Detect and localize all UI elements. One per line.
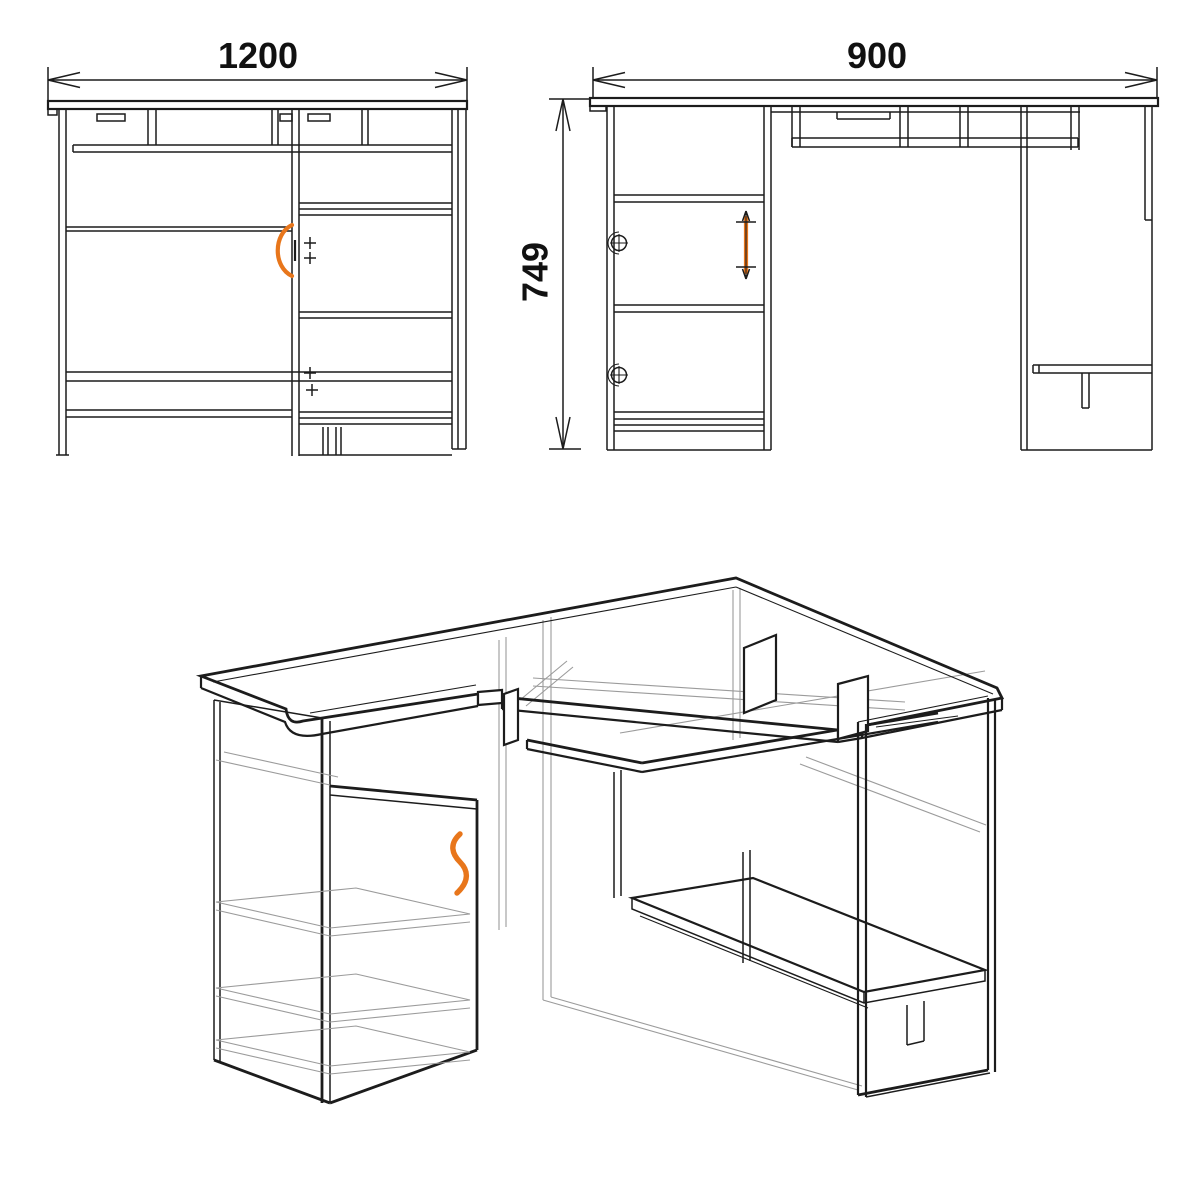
door-handle-front bbox=[278, 225, 292, 276]
cabinet-front bbox=[278, 203, 452, 455]
dimension-width-1200: 1200 bbox=[48, 35, 467, 104]
door-handle-iso bbox=[453, 834, 467, 893]
hinge-top bbox=[608, 232, 628, 254]
dimension-label-height: 749 bbox=[515, 242, 556, 302]
tray-left-cap bbox=[478, 690, 502, 705]
pedestal-side bbox=[607, 106, 771, 450]
center-supports-iso bbox=[614, 770, 750, 963]
hinge-bottom bbox=[608, 364, 628, 386]
dimension-label-width: 1200 bbox=[218, 35, 298, 76]
shelf-support-iso bbox=[907, 1001, 924, 1045]
side-view: 900 749 bbox=[515, 35, 1159, 450]
desk-panels-front bbox=[56, 109, 466, 456]
tray-right-rail bbox=[744, 635, 776, 713]
side-shelf bbox=[1033, 365, 1152, 408]
right-panel-iso bbox=[858, 696, 995, 1097]
keyboard-tray-front bbox=[73, 109, 452, 152]
corner-desk-technical-drawing: 1200 bbox=[0, 0, 1200, 1200]
lower-shelf-iso bbox=[632, 878, 985, 1045]
desktop-front bbox=[48, 101, 467, 115]
technical-drawing-page: 1200 bbox=[0, 0, 1200, 1200]
right-section-side bbox=[1021, 106, 1152, 450]
desktop-side bbox=[590, 98, 1158, 111]
dimension-height-749: 749 bbox=[515, 99, 591, 449]
desk-rails-front bbox=[66, 227, 452, 417]
front-view: 1200 bbox=[48, 35, 467, 456]
pedestal-shelves-hidden bbox=[216, 888, 470, 1074]
tray-corner-block bbox=[838, 676, 868, 739]
dimension-depth-900: 900 bbox=[593, 35, 1157, 98]
pedestal-iso bbox=[214, 700, 477, 1103]
dimension-label-depth: 900 bbox=[847, 35, 907, 76]
keyboard-tray-iso bbox=[478, 635, 938, 772]
back-panels-hidden bbox=[499, 588, 986, 1090]
tray-left-rail bbox=[504, 689, 518, 745]
door-handle-side bbox=[736, 211, 756, 279]
keyboard-tray-side bbox=[771, 106, 1080, 150]
isometric-view bbox=[201, 578, 1002, 1103]
